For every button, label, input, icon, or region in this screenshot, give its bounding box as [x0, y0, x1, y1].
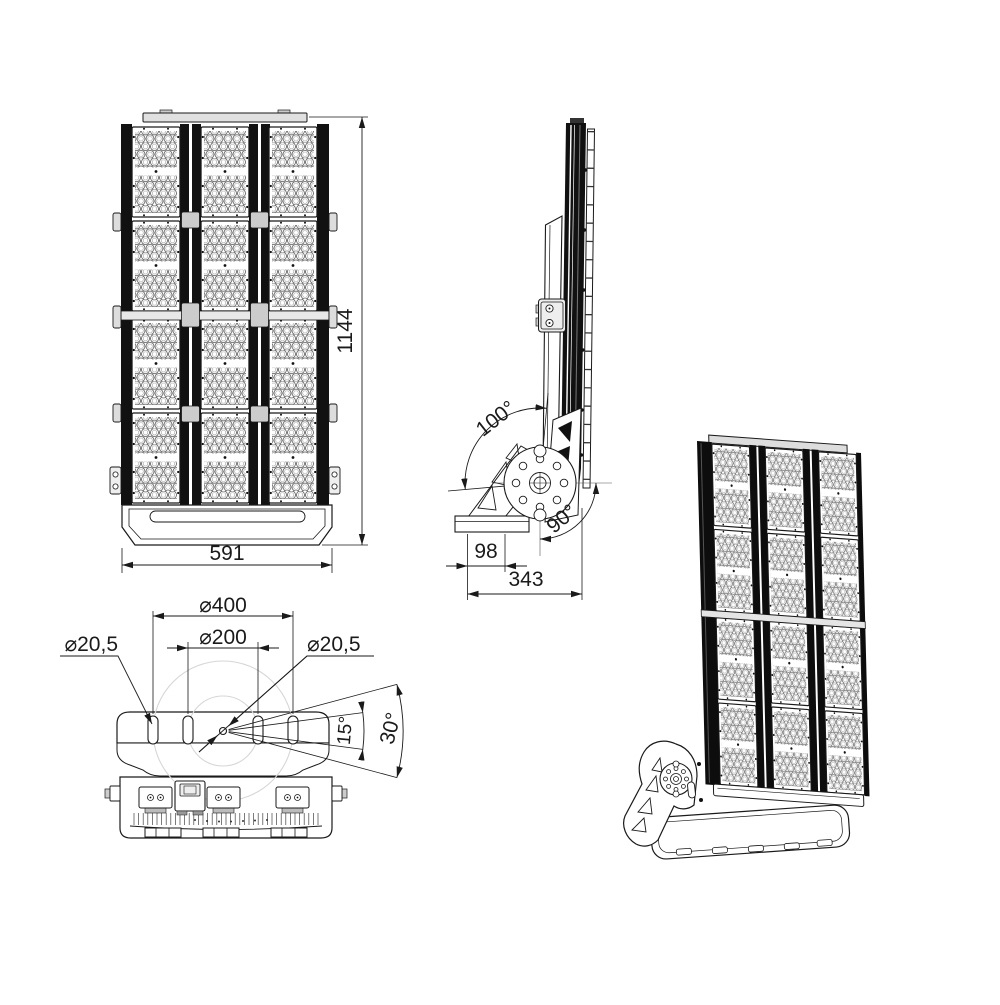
side-foot-width-label: 98	[474, 540, 497, 563]
top-outer-circle-label: ⌀400	[199, 594, 247, 617]
top-center-bracket	[175, 781, 205, 815]
top-slot-left-label: ⌀20,5	[64, 633, 118, 656]
driver-boxes	[139, 787, 309, 813]
front-view: 1144 591	[110, 110, 368, 573]
front-width-label: 591	[209, 542, 244, 565]
top-center-hole-label: ⌀20,5	[307, 633, 361, 656]
side-clamp	[536, 299, 566, 332]
technical-drawing: 1144 591	[0, 0, 1000, 1000]
top-inner-circle-label: ⌀200	[199, 626, 247, 649]
isometric-view	[624, 434, 870, 860]
dim-top-inner-circle: ⌀200	[167, 626, 279, 714]
dim-top-slot-left: ⌀20,5	[60, 633, 152, 724]
front-top-bracket	[143, 113, 307, 122]
drawing-canvas: 1144 591	[0, 0, 1000, 1000]
iso-base	[650, 804, 850, 860]
top-step-angle-label: 15°	[334, 715, 357, 745]
side-foot	[455, 516, 529, 532]
top-view: 15° 30°	[60, 594, 406, 838]
iso-panel	[697, 434, 870, 807]
front-mid-band	[121, 311, 329, 320]
side-tilt-label: 100°	[472, 396, 520, 441]
top-range-angle-label: 30°	[376, 710, 406, 746]
front-height-label: 1144	[334, 308, 357, 353]
dim-front-width: 591	[122, 542, 332, 573]
front-base	[122, 505, 332, 545]
side-view: 100° 90° 98 343	[446, 118, 612, 600]
side-depth-label: 343	[508, 568, 543, 591]
